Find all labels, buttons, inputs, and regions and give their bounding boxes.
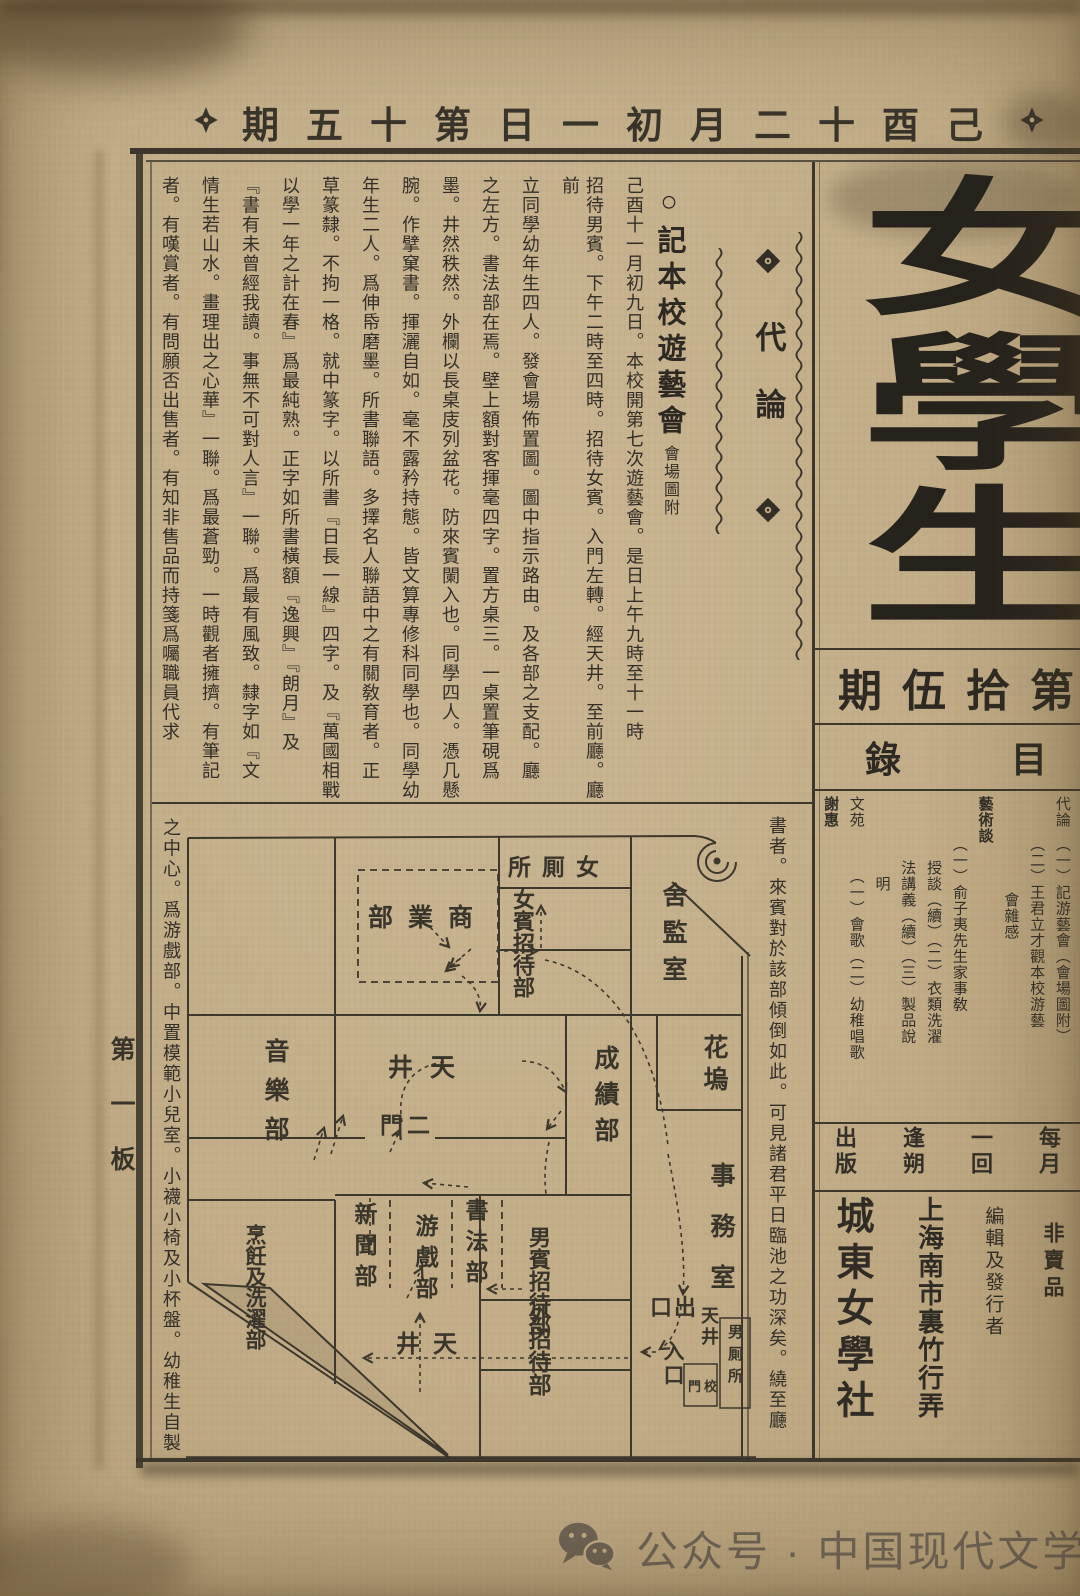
toc-column: 法講義（續）（三）製品說 <box>895 796 919 1116</box>
article-column: 腕。作擘窠書。揮灑自如。毫不露矜持態。皆文算專修科同學也。同學幼 <box>398 176 422 808</box>
schedule-item: 逢朔 <box>896 1126 928 1186</box>
map-room-external-reception: 外招待部 <box>512 1304 562 1360</box>
map-entrance: 入口 <box>658 1340 688 1388</box>
issue-number-text: 期伍拾第 <box>838 655 1080 719</box>
contents-title-text: 錄目 <box>865 731 1080 783</box>
map-courtyard-bottom: 井天 <box>396 1324 470 1359</box>
scanned-newspaper-page: 期五十第日一初月二十酉己 女學生 期伍拾第 錄目 代論 （一）記游藝會（會場圖附… <box>0 0 1080 1596</box>
article-subtitle: 會場圖附 <box>661 445 678 517</box>
publisher-address: 上海南市裏竹行弄 <box>911 1196 948 1454</box>
map-exit: 口出 <box>650 1290 698 1322</box>
issue-number-box: 期伍拾第 <box>832 652 1080 722</box>
article-column: 者。有嘆賞者。有問願否出售者。有知非售品而持箋爲囑職員代求 <box>158 176 182 808</box>
article-column: 以學一年之計在春』爲最純熟。正字如所書橫額『逸興』『朗月』及 <box>278 176 302 808</box>
page-number: 第一板 <box>102 1036 138 1201</box>
article-column: 情生若山水。畫理出之心華』一聯。爲最蒼勁。一時觀者擁擠。有筆記 <box>198 176 222 808</box>
editor-publisher-label: 編輯及發行者 <box>979 1196 1006 1454</box>
contents-title-box: 錄目 <box>832 726 1080 788</box>
map-room-matron: 舍監室 <box>654 882 690 993</box>
header-date-strip: 期五十第日一初月二十酉己 <box>192 96 992 148</box>
wavy-rule-right <box>794 232 804 660</box>
map-courtyard-2: 井天 <box>388 1048 472 1084</box>
article-column: 招待男賓。下午二時至四時。招待女賓。入門左轉。經天井。至前廳。廳前 <box>558 176 606 808</box>
publication-schedule: 每月 一回 逢朔 出版 <box>820 1126 1072 1186</box>
toc-column: （一）俞子夷先生家事敎 <box>947 796 971 1116</box>
article-column: 之左方。書法部在焉。壁上額對客揮毫四字。置方桌三。一桌置筆硯爲 <box>478 176 502 808</box>
frame-top-border <box>130 148 1080 154</box>
article-title-column: ○記本校遊藝會 會場圖附 <box>648 186 690 806</box>
map-room-women-toilet: 所厠女 <box>508 848 610 882</box>
article-column: 『書有未曾經我讀。事無不可對人言』一聯。爲最有風致。隸字如『文 <box>238 176 262 808</box>
titleblock-divider-5 <box>812 1190 1080 1192</box>
paper-stain <box>0 0 250 76</box>
map-room-games: 游戲部 <box>407 1214 441 1307</box>
paper-stain <box>94 150 104 1470</box>
fleuron-bottom-icon <box>755 497 781 528</box>
toc-column: 明 <box>870 796 894 1116</box>
map-room-news: 新聞部 <box>346 1202 380 1295</box>
article-body: 己酉十一月初九日。本校開第七次遊藝會。是日上午九時至十一時 招待男賓。下午二時至… <box>158 176 646 808</box>
toc-column: 授談（續）（二）衣類洗濯 <box>921 796 945 1116</box>
titleblock-divider-2 <box>812 723 1080 725</box>
publisher-info: 非賣品 編輯及發行者 上海南市裏竹行弄 城東女學社 <box>818 1196 1074 1454</box>
toc-column: 文苑 （一）會歌（二）幼稚唱歌 <box>844 796 868 1116</box>
map-second-gate: 門二 <box>380 1106 434 1140</box>
map-flower-bed: 花塢 <box>695 1034 731 1098</box>
titleblock-divider-3 <box>812 789 1080 791</box>
toc-column: 謝惠 <box>818 796 842 1116</box>
article-column: 年生二人。爲伸帋磨墨。所書聯語。多擇名人聯語中之有關敎育者。正 <box>358 176 382 808</box>
schedule-item: 一回 <box>964 1126 996 1186</box>
titleblock-divider-4 <box>812 1122 1080 1124</box>
article-column: 墨。井然秩然。外欄以長桌庋列盆花。防來賓闌入也。同學四人。憑几懸 <box>438 176 462 808</box>
toc-column: 會雜感 <box>998 796 1022 1116</box>
toc-column: 藝術談 <box>973 796 997 1116</box>
footer-text: 公众号 · 中国现代文学研究丛刊 <box>636 1518 1080 1579</box>
not-for-sale-label: 非賣品 <box>1038 1196 1068 1454</box>
schedule-item: 每月 <box>1032 1126 1064 1186</box>
issue-date-text: 期五十第日一初月二十酉己 <box>242 95 1010 149</box>
wechat-icon <box>556 1520 618 1577</box>
article-column: 草篆隸。不拘一格。就中篆字。以所書『日長一線』四字。及『萬國相戰 <box>318 176 342 808</box>
wavy-rule-left <box>714 248 724 534</box>
schedule-item: 出版 <box>828 1126 860 1186</box>
map-room-commerce: 部業商 <box>368 898 488 934</box>
publisher-name: 城東女學社 <box>824 1196 879 1454</box>
toc-column: 代論 （一）記游藝會（會場圖附） <box>1050 796 1074 1116</box>
toc-column: （二）王君立才觀本校游藝 <box>1024 796 1048 1116</box>
article-title: ○記本校遊藝會 <box>653 186 685 441</box>
fleuron-right-icon <box>1018 106 1046 139</box>
map-courtyard-right: 天井 <box>696 1306 722 1348</box>
venue-map: 部業商 所厠女 女賓招待部 舍監室 音樂部 井天 門二 成績部 花塢 烹飪及洗濯… <box>150 810 790 1470</box>
frame-left-border <box>136 148 143 1468</box>
map-school-gate: 門校 <box>688 1376 720 1395</box>
map-room-men-reception: 男賓招待部 <box>516 1226 560 1284</box>
map-room-grades: 成績部 <box>586 1045 622 1153</box>
frame-top-inner-line <box>146 160 1080 162</box>
map-room-cooking-washing: 烹飪及洗濯部 <box>240 1224 269 1280</box>
section-header: 代論 <box>744 248 792 528</box>
titleblock-left-border <box>812 162 815 1458</box>
article-column: 立同學幼年生四人。發會場佈置圖。圖中指示路由。及各部之支配。廳 <box>518 176 542 808</box>
paper-stain <box>0 1520 190 1596</box>
section-label: 代論 <box>746 321 791 455</box>
map-room-music: 音樂部 <box>256 1038 292 1155</box>
article-column: 己酉十一月初九日。本校開第七次遊藝會。是日上午九時至十一時 <box>622 176 646 808</box>
fleuron-left-icon <box>192 106 220 139</box>
table-of-contents: 代論 （一）記游藝會（會場圖附） （二）王君立才觀本校游藝 會雜感 藝術談 （一… <box>818 796 1074 1116</box>
paper-stain <box>0 0 1080 14</box>
map-room-calligraphy: 書法部 <box>457 1198 491 1291</box>
footer-watermark: 公众号 · 中国现代文学研究丛刊 <box>556 1508 1080 1588</box>
masthead-title: 女學生 <box>826 172 1080 658</box>
map-men-toilet: 男厠所 <box>724 1324 745 1390</box>
map-room-office: 事務室 <box>702 1162 738 1315</box>
map-room-women-reception: 女賓招待部 <box>502 888 542 944</box>
fleuron-top-icon <box>755 248 781 279</box>
